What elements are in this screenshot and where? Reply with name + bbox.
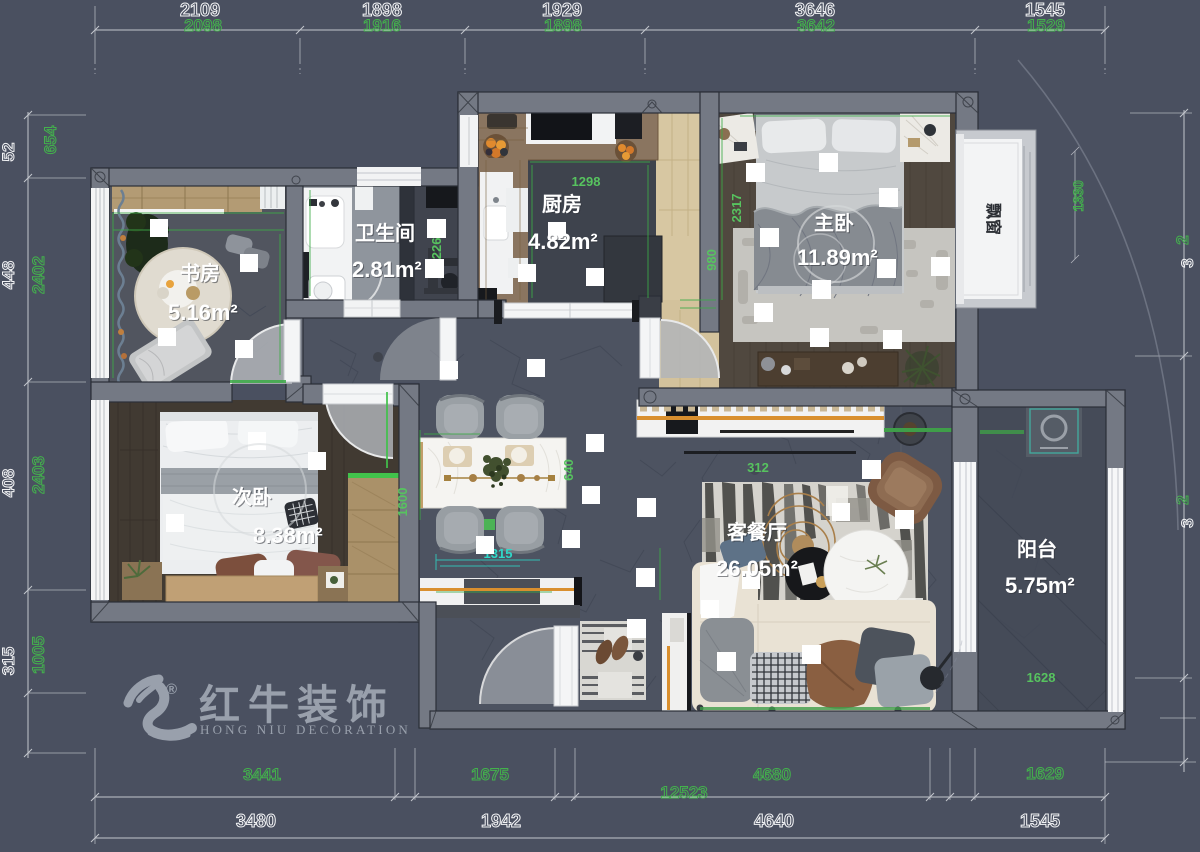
svg-text:5.16m²: 5.16m²	[168, 300, 238, 325]
svg-text:1916: 1916	[363, 16, 401, 35]
svg-text:3: 3	[1178, 258, 1197, 267]
svg-text:1628: 1628	[1027, 670, 1056, 685]
svg-text:1330: 1330	[1070, 180, 1086, 211]
svg-text:3480: 3480	[236, 811, 276, 831]
svg-text:2098: 2098	[184, 16, 222, 35]
svg-text:2403: 2403	[29, 456, 48, 494]
svg-text:书房: 书房	[180, 261, 220, 285]
svg-text:卫生间: 卫生间	[355, 222, 415, 245]
svg-text:HONG NIU DECORATION: HONG NIU DECORATION	[200, 722, 411, 737]
svg-text:4680: 4680	[753, 765, 791, 784]
svg-text:1675: 1675	[471, 765, 509, 784]
svg-text:3441: 3441	[243, 765, 281, 784]
svg-text:1600: 1600	[395, 488, 410, 517]
svg-text:980: 980	[704, 249, 719, 271]
svg-text:2317: 2317	[729, 194, 744, 223]
svg-text:2: 2	[1173, 495, 1192, 504]
svg-text:2.81m²: 2.81m²	[352, 257, 422, 282]
svg-text:408: 408	[0, 469, 18, 497]
svg-text:1298: 1298	[572, 174, 601, 189]
svg-text:1529: 1529	[1027, 16, 1065, 35]
svg-text:1629: 1629	[1026, 764, 1064, 783]
svg-text:11.89m²: 11.89m²	[797, 245, 878, 270]
svg-text:52: 52	[0, 143, 18, 162]
svg-text:26.05m²: 26.05m²	[716, 556, 798, 581]
svg-text:12523: 12523	[660, 783, 707, 802]
svg-text:448: 448	[0, 261, 18, 289]
svg-text:315: 315	[0, 647, 18, 675]
svg-text:阳台: 阳台	[1017, 537, 1057, 561]
svg-text:3: 3	[1178, 518, 1197, 527]
svg-text:主卧: 主卧	[814, 211, 854, 235]
svg-text:飘窗: 飘窗	[984, 203, 1003, 235]
svg-text:厨房: 厨房	[542, 192, 582, 216]
svg-text:3642: 3642	[797, 16, 835, 35]
svg-text:1942: 1942	[481, 811, 521, 831]
svg-text:®: ®	[166, 681, 177, 698]
svg-text:客餐厅: 客餐厅	[726, 520, 787, 544]
svg-text:1005: 1005	[29, 636, 48, 674]
svg-text:640: 640	[561, 459, 576, 481]
svg-text:2402: 2402	[29, 256, 48, 294]
svg-text:654: 654	[41, 125, 60, 154]
svg-text:312: 312	[747, 460, 769, 475]
svg-text:次卧: 次卧	[232, 485, 272, 509]
svg-text:4.82m²: 4.82m²	[528, 229, 598, 254]
svg-text:1545: 1545	[1020, 811, 1060, 831]
svg-text:2: 2	[1173, 235, 1192, 244]
svg-text:4640: 4640	[754, 811, 794, 831]
svg-text:1898: 1898	[544, 16, 582, 35]
svg-text:5.75m²: 5.75m²	[1005, 573, 1075, 598]
